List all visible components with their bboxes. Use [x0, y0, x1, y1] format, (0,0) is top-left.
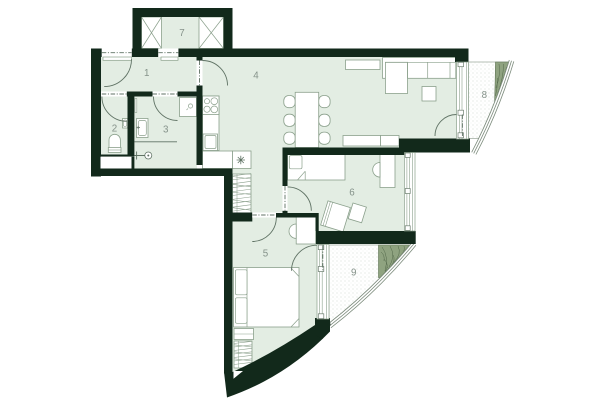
- svg-text:6: 6: [349, 188, 355, 199]
- svg-text:9: 9: [351, 267, 356, 278]
- svg-text:2: 2: [112, 124, 117, 135]
- svg-text:7: 7: [179, 28, 184, 39]
- svg-text:5: 5: [263, 249, 269, 260]
- svg-text:4: 4: [253, 70, 259, 81]
- svg-text:8: 8: [482, 90, 488, 101]
- svg-text:1: 1: [144, 68, 149, 79]
- svg-text:3: 3: [163, 124, 169, 135]
